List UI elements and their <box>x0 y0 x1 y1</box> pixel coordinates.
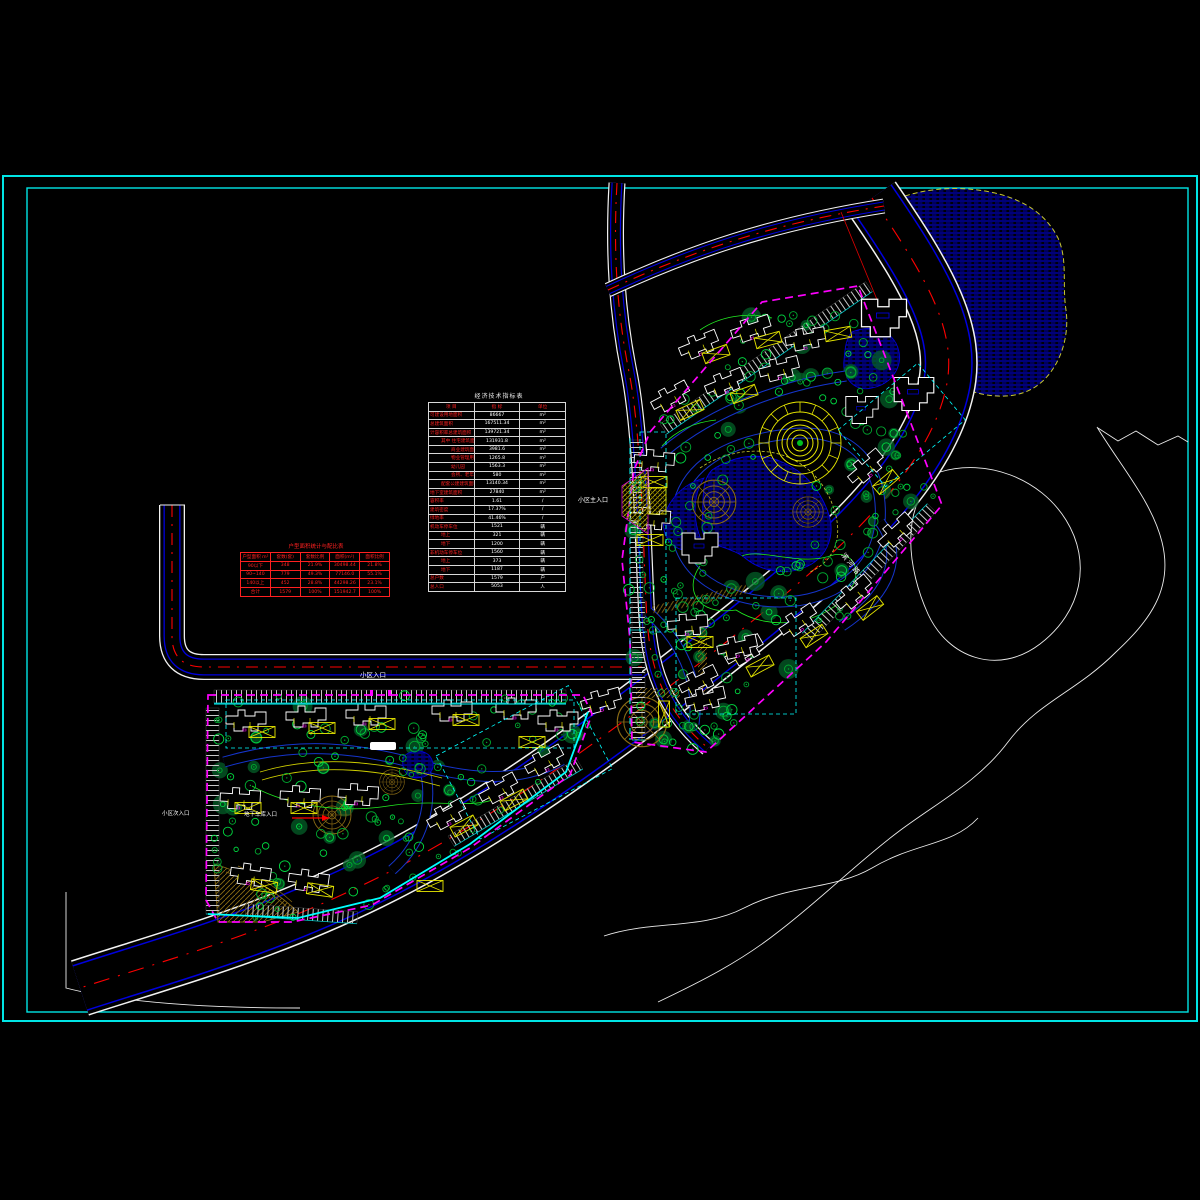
label-entrance-secondary: 小区次入口 <box>162 812 190 818</box>
label-garage-entrance: 地下车库入口 <box>244 813 277 819</box>
indicators-table-title: 经济技术指标表 <box>428 391 570 400</box>
label-entrance-side: 小区入口 <box>360 672 386 679</box>
unit-mix-table: 户型面积统计与配比表 户型面积 m²套数(套)套数比例面积(m²)面积比例90以… <box>240 542 392 597</box>
indicators-table: 经济技术指标表 项 目指 标单位可建设用地面积86667m²总建筑面积16751… <box>428 391 570 592</box>
label-entrance-main: 小区主入口 <box>578 498 608 504</box>
unit-mix-table-title: 户型面积统计与配比表 <box>240 542 392 550</box>
cad-viewport[interactable]: 小区入口 小区主入口 小区次入口 地下车库入口 滨河路 经济技术指标表 项 目指… <box>0 0 1200 1200</box>
site-plan-drawing <box>0 0 1200 1200</box>
central-plaza <box>759 402 841 484</box>
